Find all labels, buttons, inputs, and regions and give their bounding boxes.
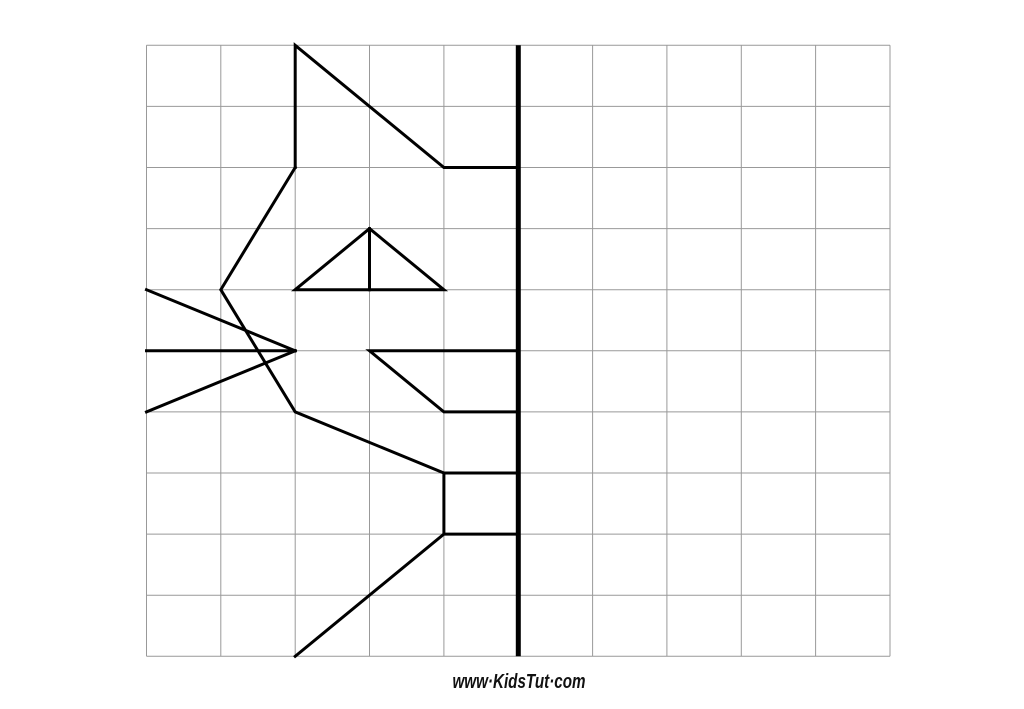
svg-text:www·KidsTut·com: www·KidsTut·com	[453, 670, 586, 693]
